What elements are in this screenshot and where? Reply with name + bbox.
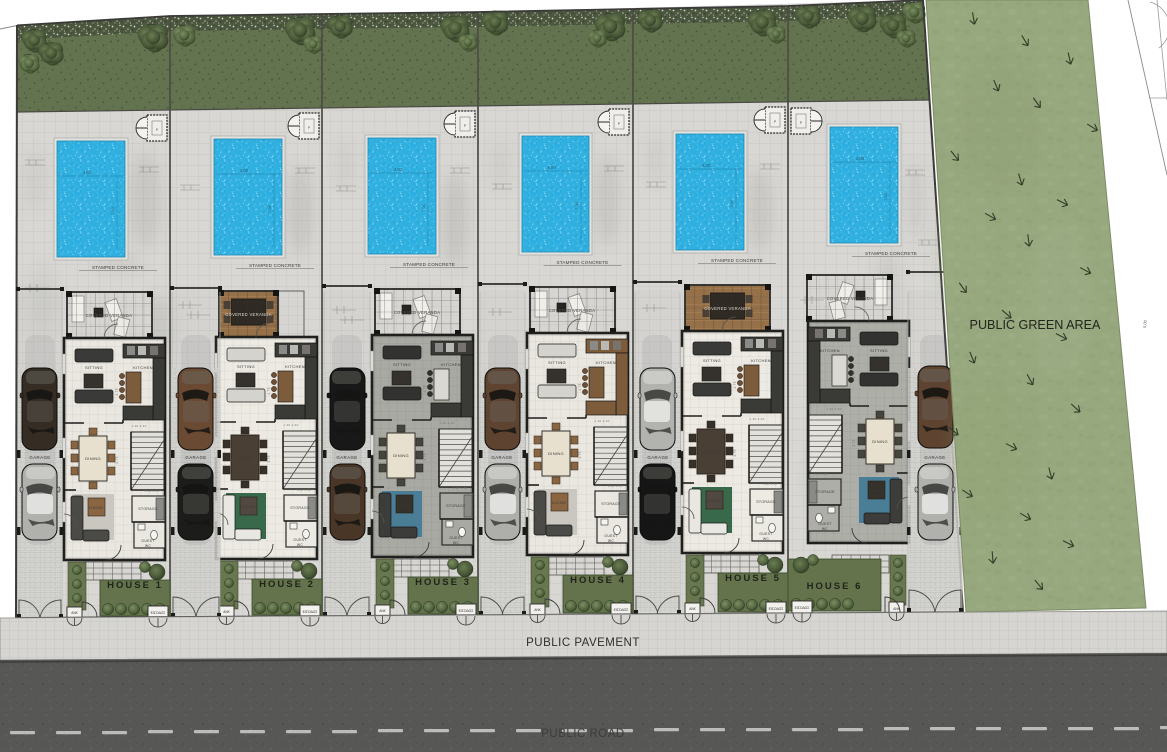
svg-text:SITTING: SITTING [237,364,255,369]
svg-text:GUEST: GUEST [604,534,617,538]
svg-text:PUBLIC PAVEMENT: PUBLIC PAVEMENT [526,637,640,649]
svg-text:GARAGE: GARAGE [29,455,50,460]
svg-text:DINING: DINING [703,449,719,454]
svg-text:1.40 2.40: 1.40 2.40 [131,424,146,428]
svg-text:GUEST: GUEST [141,539,154,543]
svg-text:7.00: 7.00 [884,193,888,200]
svg-text:4.00: 4.00 [547,165,556,170]
svg-text:STAMPED CONCRETE: STAMPED CONCRETE [92,265,144,270]
svg-text:COVERED VERANDA: COVERED VERANDA [225,312,272,317]
svg-text:4.00: 4.00 [83,170,92,175]
svg-text:LIVING: LIVING [552,501,566,505]
svg-text:LIVING: LIVING [397,503,411,507]
svg-text:ΕΙΣΟΔΟΣ: ΕΙΣΟΔΟΣ [795,606,810,610]
svg-text:7.00: 7.00 [730,200,734,207]
svg-text:COVERED VERANDA: COVERED VERANDA [394,310,441,315]
svg-text:ΕΙΣΟΔΟΣ: ΕΙΣΟΔΟΣ [614,608,629,612]
svg-text:7.00: 7.00 [111,207,115,214]
svg-text:4.75: 4.75 [852,371,856,378]
svg-text:PUBLIC GREEN AREA: PUBLIC GREEN AREA [970,318,1101,332]
svg-text:COVERED VERANDA: COVERED VERANDA [549,308,596,313]
svg-text:STORAGE: STORAGE [601,502,621,506]
svg-text:WC: WC [822,527,829,531]
svg-text:GARAGE: GARAGE [185,455,206,460]
svg-text:ΑΝΚ: ΑΝΚ [71,611,78,615]
svg-text:KITCHEN: KITCHEN [820,348,840,353]
svg-text:STORAGE: STORAGE [756,500,776,504]
svg-text:4.00: 4.00 [702,163,711,168]
svg-text:HOUSE 2: HOUSE 2 [259,579,315,590]
svg-text:SITTING: SITTING [870,348,888,353]
svg-text:4.75: 4.75 [423,385,427,392]
svg-text:GARAGE: GARAGE [647,455,668,460]
svg-text:GUEST: GUEST [293,538,306,542]
svg-text:PUBLIC ROAD: PUBLIC ROAD [541,728,624,740]
svg-text:SITTING: SITTING [85,365,103,370]
svg-text:DINING: DINING [548,451,564,456]
svg-text:ΑΝΚ: ΑΝΚ [534,608,541,612]
svg-text:WC: WC [453,541,460,545]
svg-text:7.00: 7.00 [268,205,272,212]
svg-text:DINING: DINING [237,455,253,460]
svg-text:WC: WC [145,544,152,548]
svg-text:LIVING: LIVING [241,505,255,509]
svg-text:DINING: DINING [872,439,888,444]
svg-text:LIVING: LIVING [870,489,884,493]
svg-text:GUEST: GUEST [759,532,772,536]
svg-text:0.10 1.00: 0.10 1.00 [814,472,829,476]
svg-text:0.10 1.00: 0.10 1.00 [453,486,468,490]
svg-text:1.40 2.40: 1.40 2.40 [594,419,609,423]
svg-text:KITCHEN: KITCHEN [285,364,305,369]
svg-text:ΕΙΣΟΔΟΣ: ΕΙΣΟΔΟΣ [769,607,784,611]
svg-text:WC: WC [297,543,304,547]
svg-text:WC: WC [608,539,615,543]
svg-text:0.10 1.00: 0.10 1.00 [145,489,160,493]
svg-text:KITCHEN: KITCHEN [133,365,153,370]
svg-text:COVERED VERANDA: COVERED VERANDA [827,296,874,301]
svg-text:0.10 1.00: 0.10 1.00 [763,482,778,486]
svg-text:WC: WC [763,537,770,541]
svg-text:ΕΙΣΟΔΟΣ: ΕΙΣΟΔΟΣ [459,609,474,613]
svg-text:KITCHEN: KITCHEN [441,362,461,367]
svg-text:3.75: 3.75 [733,449,737,456]
svg-text:3.75: 3.75 [115,456,119,463]
svg-text:4.00: 4.00 [394,167,403,172]
svg-text:ΑΝΚ: ΑΝΚ [689,607,696,611]
svg-text:0.10 1.00: 0.10 1.00 [297,488,312,492]
svg-text:KITCHEN: KITCHEN [751,358,771,363]
svg-text:HOUSE 3: HOUSE 3 [415,577,471,588]
svg-text:GUEST: GUEST [449,536,462,540]
svg-text:STORAGE: STORAGE [815,490,835,494]
svg-text:STAMPED CONCRETE: STAMPED CONCRETE [865,251,917,256]
svg-text:7.00: 7.00 [575,202,579,209]
svg-text:LIVING: LIVING [89,506,103,510]
svg-text:4.75: 4.75 [115,388,119,395]
svg-text:3.75: 3.75 [578,451,582,458]
svg-text:ΕΙΣΟΔΟΣ: ΕΙΣΟΔΟΣ [151,611,166,615]
svg-text:STORAGE: STORAGE [446,504,466,508]
svg-text:1.40 2.40: 1.40 2.40 [283,423,298,427]
svg-text:4.00: 4.00 [240,168,249,173]
svg-text:3.75: 3.75 [852,439,856,446]
svg-text:1.40 2.40: 1.40 2.40 [749,417,764,421]
svg-text:COVERED VERANDA: COVERED VERANDA [86,313,133,318]
svg-text:HOUSE 4: HOUSE 4 [570,575,626,586]
svg-text:4.75: 4.75 [733,381,737,388]
svg-text:4.00: 4.00 [856,156,865,161]
svg-text:SITTING: SITTING [548,360,566,365]
svg-text:STAMPED CONCRETE: STAMPED CONCRETE [249,263,301,268]
svg-text:7.00: 7.00 [422,204,426,211]
svg-text:4.75: 4.75 [578,383,582,390]
svg-text:0.10 1.00: 0.10 1.00 [608,484,623,488]
svg-text:DINING: DINING [85,456,101,461]
svg-text:SITTING: SITTING [393,362,411,367]
svg-text:3.75: 3.75 [423,453,427,460]
svg-text:GUEST: GUEST [818,522,831,526]
svg-text:GARAGE: GARAGE [491,455,512,460]
svg-text:4.75: 4.75 [267,387,271,394]
svg-text:1.40 2.40: 1.40 2.40 [826,407,841,411]
svg-text:ΕΙΣΟΔΟΣ: ΕΙΣΟΔΟΣ [303,610,318,614]
svg-text:COVERED VERANDA: COVERED VERANDA [704,306,751,311]
svg-text:STORAGE: STORAGE [290,506,310,510]
svg-text:DINING: DINING [393,453,409,458]
svg-text:GARAGE: GARAGE [336,455,357,460]
svg-text:ΑΝΚ: ΑΝΚ [223,610,230,614]
svg-text:STAMPED CONCRETE: STAMPED CONCRETE [556,260,608,265]
svg-text:STAMPED CONCRETE: STAMPED CONCRETE [711,258,763,263]
svg-text:1.40 2.40: 1.40 2.40 [439,421,454,425]
svg-text:3.75: 3.75 [267,455,271,462]
svg-text:GARAGE: GARAGE [924,455,945,460]
svg-text:5.00: 5.00 [1142,319,1148,328]
svg-text:HOUSE 1: HOUSE 1 [107,580,163,591]
svg-text:SITTING: SITTING [703,358,721,363]
svg-text:KITCHEN: KITCHEN [596,360,616,365]
svg-text:STORAGE: STORAGE [138,507,158,511]
svg-text:HOUSE 6: HOUSE 6 [807,581,863,592]
svg-text:ΑΝΚ: ΑΝΚ [379,609,386,613]
svg-text:STAMPED CONCRETE: STAMPED CONCRETE [403,262,455,267]
svg-text:LIVING: LIVING [707,499,721,503]
svg-text:HOUSE 5: HOUSE 5 [725,573,781,584]
